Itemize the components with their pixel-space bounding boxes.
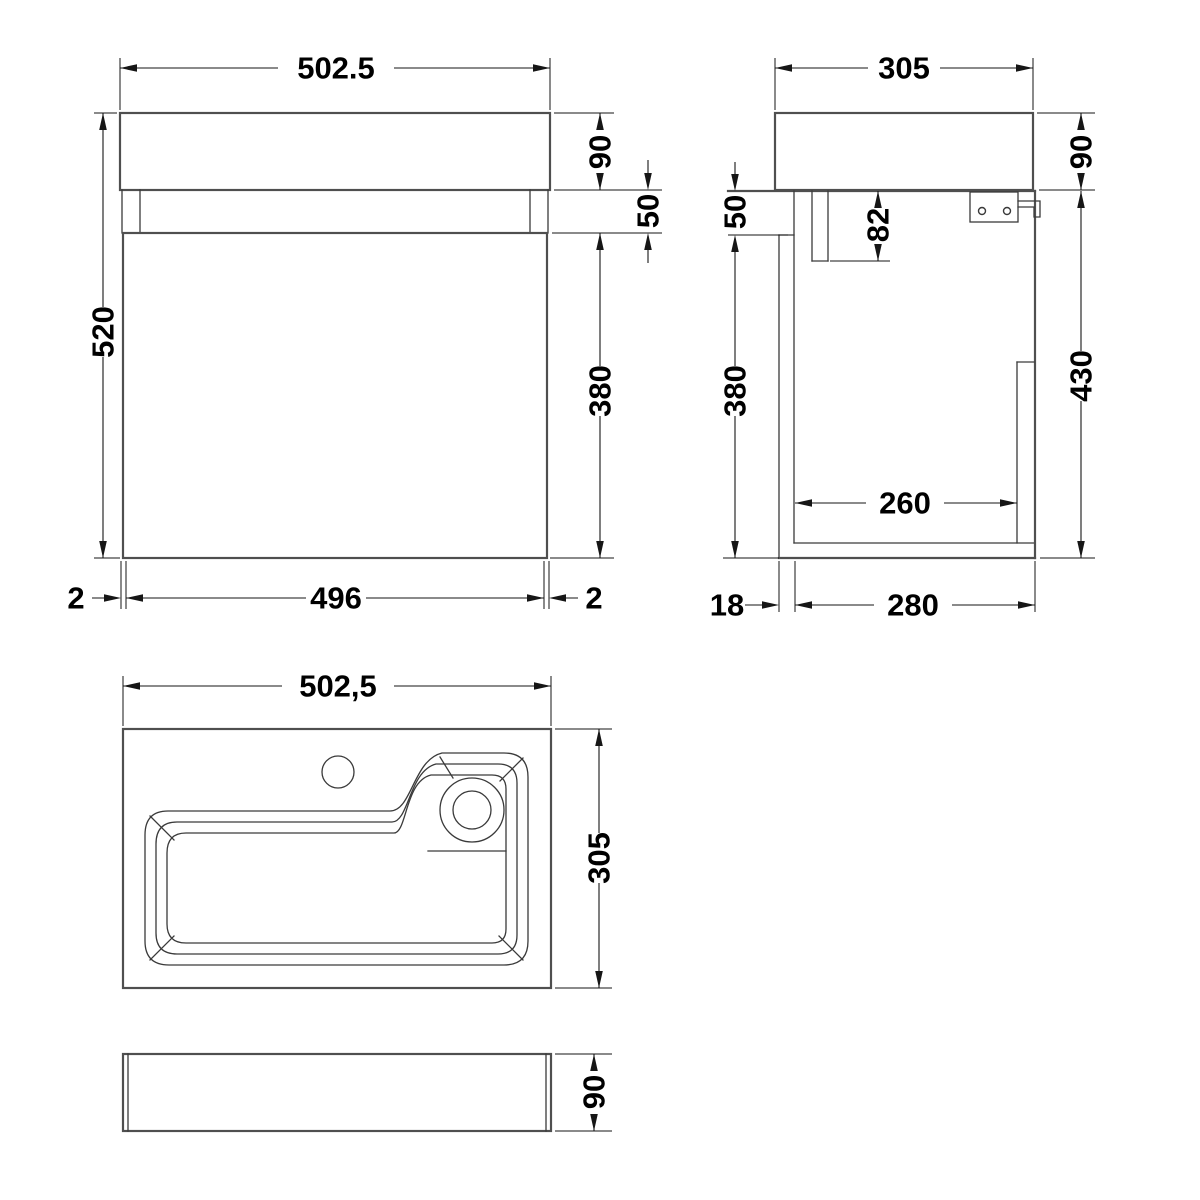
technical-drawing-sheet: 502.5 90 50 380 520	[0, 0, 1200, 1200]
waste-hole	[453, 791, 491, 829]
side-back-panel-label: 18	[710, 588, 744, 623]
front-view: 502.5 90 50 380 520	[67, 51, 665, 616]
corner-tick-br	[499, 936, 523, 960]
bottom-strip-outline	[123, 1054, 551, 1131]
side-basin-outline	[775, 113, 1033, 190]
bottom-height-label: 90	[577, 1075, 612, 1109]
side-cabinet-depth-label: 280	[887, 588, 939, 623]
bottom-view: 90	[123, 1054, 612, 1131]
front-edge-right-label: 2	[585, 581, 602, 616]
corner-tick-tl	[150, 816, 174, 840]
wall-bracket	[970, 192, 1018, 222]
plan-view: 502,5 305	[123, 669, 617, 989]
front-edge-left-label: 2	[67, 581, 84, 616]
side-door-height-label: 380	[718, 365, 753, 417]
side-view: 305 90 50 380 82 260	[710, 51, 1099, 623]
side-depth-label: 305	[878, 51, 930, 86]
front-door-height-label: 380	[583, 365, 618, 417]
plan-width-label: 502,5	[299, 669, 377, 704]
front-basin-height-label: 90	[583, 135, 618, 169]
side-basin-height-label: 90	[1064, 135, 1099, 169]
bracket-hole-left	[979, 208, 986, 215]
front-basin-outline	[120, 113, 550, 190]
side-hang-height-label: 430	[1064, 350, 1099, 402]
side-internal-depth-label: 260	[879, 486, 931, 521]
front-recess-label: 50	[631, 194, 666, 228]
drain-recess	[440, 778, 504, 842]
vanity-dimension-drawing: 502.5 90 50 380 520	[0, 0, 1200, 1200]
bowl-contour-outer	[145, 753, 528, 965]
plan-basin-outline	[123, 729, 551, 988]
tap-hole	[322, 756, 354, 788]
front-door-width-label: 496	[310, 581, 362, 616]
bracket-hole-right	[1004, 208, 1011, 215]
corner-tick-bl	[150, 936, 174, 960]
front-width-label: 502.5	[297, 51, 375, 86]
bracket-hook	[1018, 201, 1040, 217]
corner-tick-platform-tr	[500, 758, 523, 781]
side-recess-label: 50	[718, 195, 753, 229]
side-apron-drop-label: 82	[861, 208, 896, 242]
front-cabinet-outline	[123, 233, 547, 558]
front-total-height-label: 520	[86, 306, 121, 358]
plan-depth-label: 305	[582, 832, 617, 884]
bowl-contour-mid	[156, 764, 517, 954]
